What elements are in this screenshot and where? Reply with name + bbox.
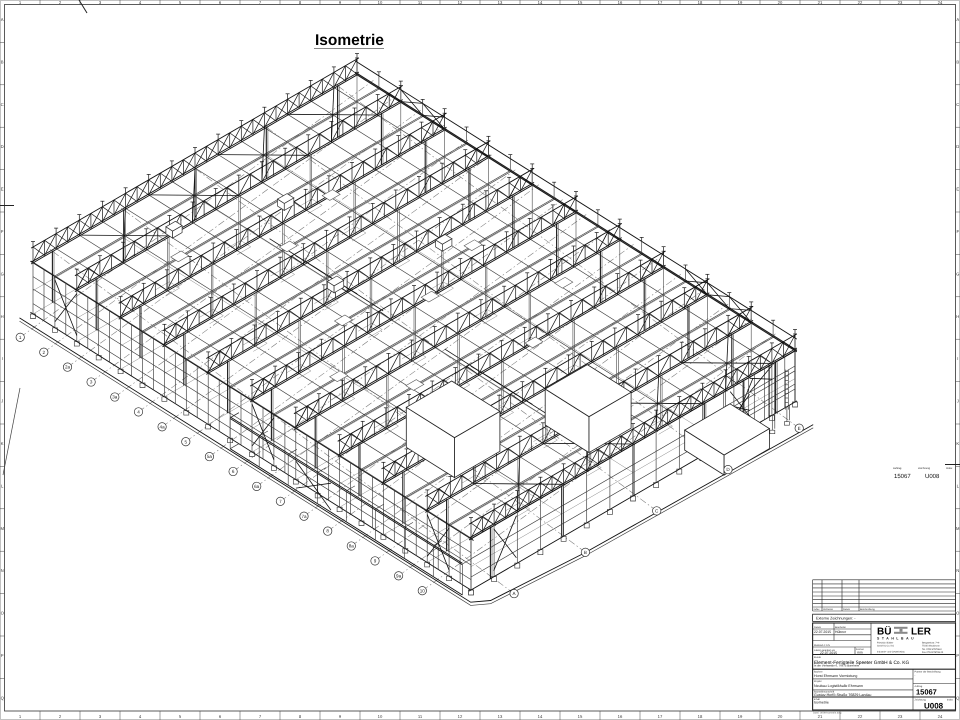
svg-text:9a: 9a [396,573,402,578]
svg-text:N: N [1,568,4,573]
svg-text:E: E [798,426,801,431]
svg-text:23: 23 [898,714,903,719]
svg-text:Industrie- und Gewerbebau: Industrie- und Gewerbebau [877,651,906,654]
svg-text:5a: 5a [207,454,213,459]
svg-text:J: J [1,399,3,404]
svg-text:12: 12 [458,714,463,719]
svg-text:STAHLBAU: STAHLBAU [877,637,916,641]
svg-text:Index: Index [947,699,954,702]
svg-text:M: M [0,526,4,531]
svg-text:O: O [956,611,960,616]
svg-text:13: 13 [498,714,503,719]
svg-text:Hübner: Hübner [835,630,847,634]
svg-text:3: 3 [90,380,93,385]
svg-text:Partner der Beschriftung: Partner der Beschriftung [915,670,942,673]
svg-text:Neubau Logistikhalle Ehrmann: Neubau Logistikhalle Ehrmann [814,684,863,688]
svg-text:U008: U008 [924,702,944,711]
svg-text:D: D [956,144,959,149]
svg-text:18: 18 [698,0,703,5]
svg-text:19: 19 [738,0,743,5]
svg-text:10: 10 [378,0,383,5]
svg-text:15067: 15067 [916,688,937,697]
svg-text:24: 24 [938,0,943,5]
svg-text:Datei: U008-Isometrie.dwg: Datei: U008-Isometrie.dwg [813,712,842,715]
svg-text:F: F [1,229,4,234]
svg-text:12: 12 [458,0,463,5]
svg-text:K: K [1,441,4,446]
svg-text:14: 14 [538,714,543,719]
svg-text:mm: mm [857,651,863,655]
svg-text:Friedrich Bühler: Friedrich Bühler [877,642,893,645]
svg-text:Kunde: Kunde [814,656,822,659]
svg-text:Zeichnung: Zeichnung [918,467,931,470]
svg-text:6a: 6a [254,484,260,489]
svg-text:Datum: Datum [814,626,821,629]
svg-text:Projekt: Projekt [814,680,822,683]
svg-text:13: 13 [498,0,503,5]
svg-text:D: D [1,144,4,149]
svg-text:15067: 15067 [894,473,911,480]
svg-text:10: 10 [420,588,426,593]
svg-text:B: B [1,59,4,64]
svg-text:Isometrie: Isometrie [814,701,829,705]
svg-text:15: 15 [578,0,583,5]
svg-text:14: 14 [538,0,543,5]
svg-text:E: E [1,187,4,192]
svg-text:7: 7 [279,499,282,504]
svg-text:H: H [1,314,4,319]
svg-text:Q: Q [956,695,960,700]
svg-text:22.07.2015: 22.07.2015 [820,651,837,655]
svg-text:19: 19 [738,714,743,719]
svg-text:N: N [956,568,959,573]
svg-text:U008: U008 [925,473,940,480]
svg-text:C: C [1,102,4,107]
svg-text:E: E [956,187,959,192]
svg-text:J: J [957,399,959,404]
svg-text:Bearbeiter: Bearbeiter [835,626,846,629]
svg-text:Gustav-Herfö-Straße 76829 La: Gustav-Herfö-Straße 76829 Landau [814,693,871,697]
svg-text:Verfasser: Verfasser [823,608,833,611]
svg-text:B: B [956,59,959,64]
svg-text:10: 10 [378,714,383,719]
svg-text:B: B [584,550,587,555]
svg-text:A: A [956,17,959,22]
svg-text:2a: 2a [65,365,71,370]
svg-text:21: 21 [818,0,823,5]
svg-text:2: 2 [43,350,46,355]
svg-text:23: 23 [898,0,903,5]
svg-text:G: G [1,271,4,276]
svg-text:1: 1 [19,335,22,340]
svg-text:Bergwerkstr. 7+9: Bergwerkstr. 7+9 [922,642,940,645]
svg-text:11: 11 [418,0,423,5]
svg-text:22: 22 [858,714,863,719]
svg-text:20: 20 [778,714,783,719]
svg-text:G: G [956,271,959,276]
svg-text:20: 20 [778,0,783,5]
svg-text:7a: 7a [301,514,307,519]
svg-text:17: 17 [658,0,663,5]
svg-text:Tel. 07043/78798-0: Tel. 07043/78798-0 [922,648,942,651]
svg-text:15: 15 [578,714,583,719]
svg-text:Fax 07043/78798-20: Fax 07043/78798-20 [922,651,944,654]
svg-text:I: I [957,356,958,361]
svg-text:75433 Maulbronn: 75433 Maulbronn [922,645,941,648]
svg-text:8: 8 [326,529,329,534]
svg-text:6: 6 [232,469,235,474]
svg-text:GmbH & Co. KG: GmbH & Co. KG [877,645,894,648]
svg-text:22: 22 [858,0,863,5]
svg-text:Beschreibung: Beschreibung [860,608,875,611]
svg-text:21: 21 [818,714,823,719]
svg-text:Isometrie: Isometrie [315,32,384,49]
svg-text:8a: 8a [349,544,355,549]
svg-text:Index: Index [814,608,821,611]
svg-text:Horst Ehrmann Vermietung: Horst Ehrmann Vermietung [814,674,857,678]
svg-text:17: 17 [658,714,663,719]
svg-text:16: 16 [618,0,623,5]
svg-text:Externe Zeichnungen: -: Externe Zeichnungen: - [816,617,856,621]
svg-text:F: F [957,229,960,234]
svg-text:11: 11 [418,714,423,719]
svg-text:C: C [956,102,959,107]
svg-text:Maßstab 1:125: Maßstab 1:125 [814,644,831,647]
svg-text:9: 9 [374,559,377,564]
svg-text:4a: 4a [160,424,166,429]
svg-text:Datum: Datum [843,608,850,611]
svg-text:18: 18 [698,714,703,719]
svg-text:3a: 3a [112,395,118,400]
svg-text:K: K [956,441,959,446]
svg-text:5: 5 [185,439,188,444]
svg-text:16: 16 [618,714,623,719]
svg-text:24: 24 [938,714,943,719]
svg-text:P: P [956,653,959,658]
svg-text:Element-Fertigteile Speeter Gm: Element-Fertigteile Speeter GmbH & Co. K… [814,660,909,666]
svg-text:I: I [2,356,3,361]
svg-text:M: M [956,526,960,531]
svg-text:P: P [1,653,4,658]
svg-text:22.07.2015: 22.07.2015 [814,630,831,634]
svg-text:A: A [1,17,4,22]
svg-text:Index: Index [946,467,953,470]
svg-text:4: 4 [137,410,140,415]
svg-text:Auftrag: Auftrag [893,467,902,470]
svg-text:H: H [956,314,959,319]
